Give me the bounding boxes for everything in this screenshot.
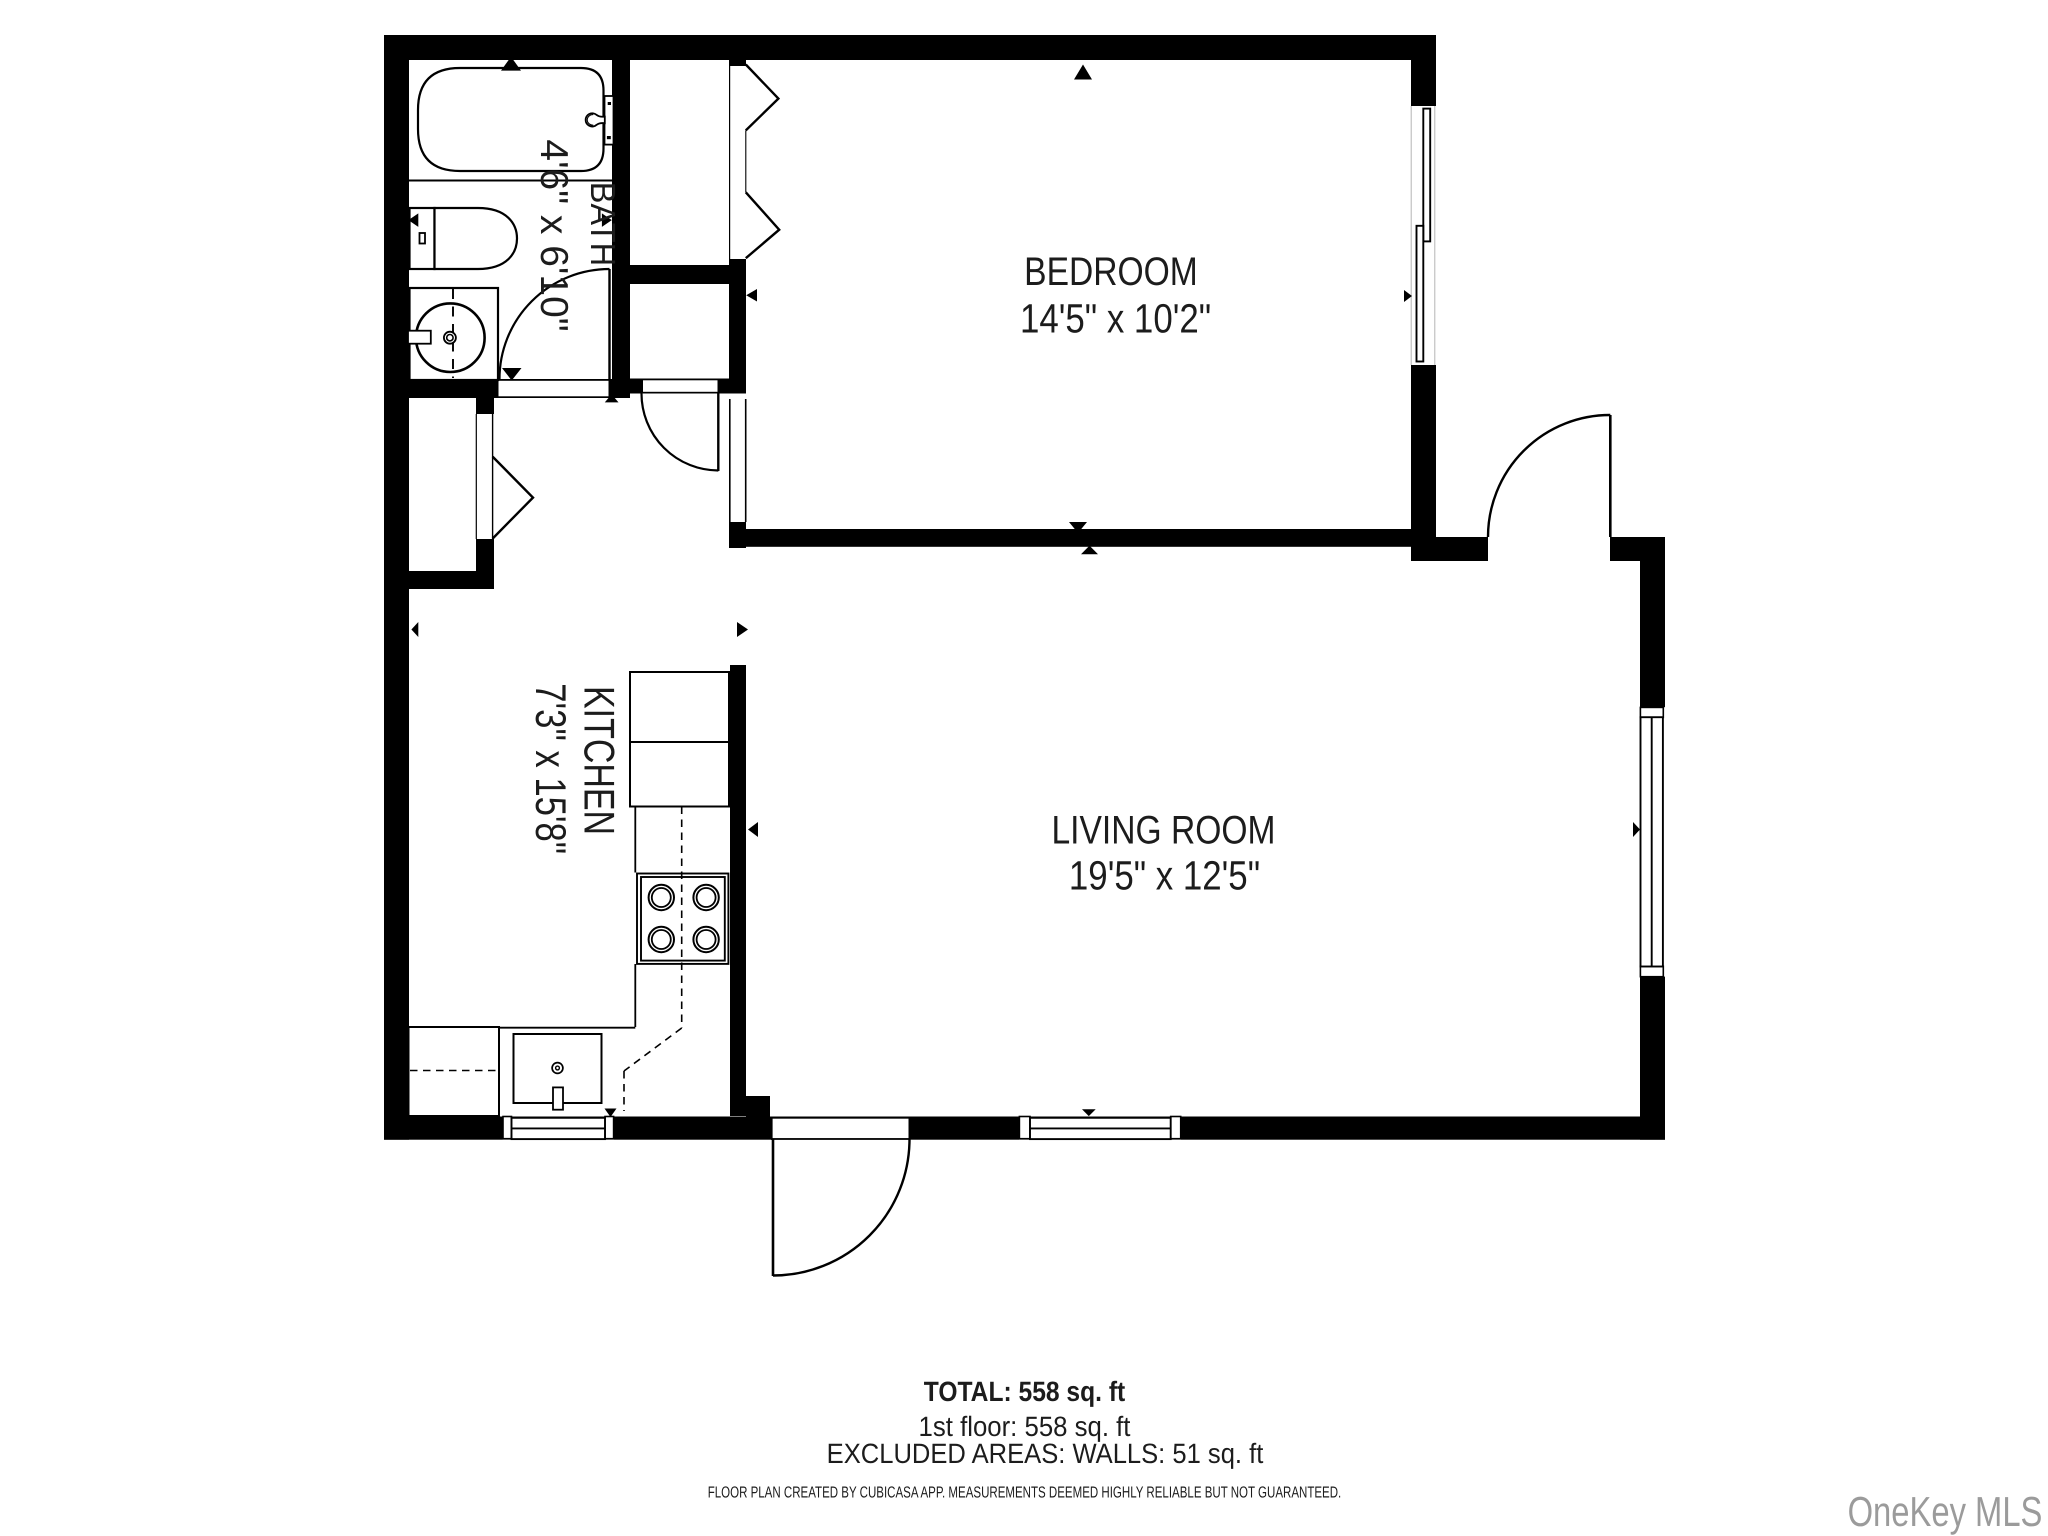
svg-text:LIVING ROOM: LIVING ROOM [1051,809,1275,853]
svg-text:7'3" x 15'8": 7'3" x 15'8" [526,683,574,854]
svg-text:KITCHEN: KITCHEN [574,686,622,835]
svg-text:OneKey MLS: OneKey MLS [1848,1488,2043,1535]
svg-text:BATH: BATH [583,182,622,266]
svg-text:TOTAL: 558 sq. ft: TOTAL: 558 sq. ft [924,1376,1125,1407]
svg-text:14'5" x 10'2": 14'5" x 10'2" [1020,296,1211,342]
svg-text:4'6" x 6'10": 4'6" x 6'10" [532,139,575,331]
svg-text:BEDROOM: BEDROOM [1024,250,1198,294]
svg-text:EXCLUDED AREAS: WALLS: 51 sq.: EXCLUDED AREAS: WALLS: 51 sq. ft [827,1438,1264,1469]
svg-text:FLOOR PLAN CREATED BY CUBICASA: FLOOR PLAN CREATED BY CUBICASA APP. MEAS… [708,1485,1342,1502]
svg-text:19'5" x 12'5": 19'5" x 12'5" [1069,853,1260,899]
